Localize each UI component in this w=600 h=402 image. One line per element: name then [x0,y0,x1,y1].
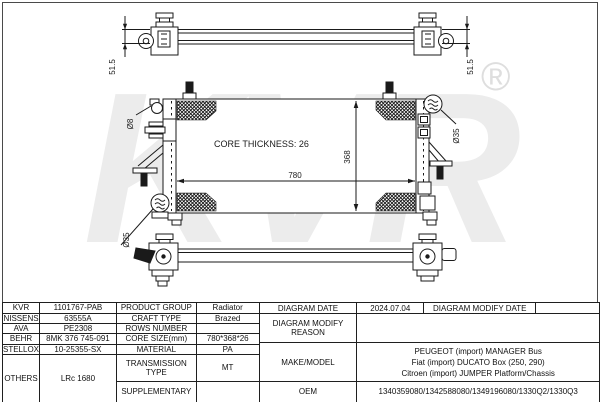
make-model-line: PEUGEOT (import) MANAGER Bus [357,346,599,357]
brand-cell: NISSENS [3,314,40,324]
spec-value-cell: Brazed [196,314,259,324]
dim-width-label: 780 [288,171,302,180]
brand-cell: KVR [3,303,40,314]
diagram-modify-reason-label-cell: DIAGRAM MODIFY REASON [259,314,357,343]
diagram-modify-date-label-cell: DIAGRAM MODIFY DATE [424,303,536,314]
spec-label-cell: ROWS NUMBER [116,324,196,334]
spec-label-cell: SUPPLEMENTARY [116,381,196,402]
part-number-cell: LRc 1680 [40,354,117,402]
make-model-line: Citroen (import) JUMPER Platform/Chassis [357,368,599,379]
spec-table-left: KVR 1101767-PAB PRODUCT GROUP Radiator N… [2,302,260,402]
make-model-line: Fiat (import) DUCATO Box (250, 290) [357,357,599,368]
spec-label-cell: CORE SIZE(mm) [116,334,196,344]
diagram-modify-reason-value-cell [357,314,600,343]
brand-cell: OTHERS [3,354,40,402]
spec-label-cell: CRAFT TYPE [116,314,196,324]
spec-value-cell: PA [196,344,259,354]
dia35-right-label: Ø35 [452,128,461,144]
dia8-label: Ø8 [126,118,135,129]
spec-label-cell: PRODUCT GROUP [116,303,196,314]
core-thickness-label: CORE THICKNESS: 26 [214,139,309,149]
spec-value-cell: MT [196,354,259,381]
drain-cap [151,194,169,212]
diagram-date-value-cell: 2024.07.04 [357,303,424,314]
brand-cell: AVA [3,324,40,334]
spec-value-cell: Radiator [196,303,259,314]
radiator-diagram: KVR ® [0,0,600,302]
part-number-cell: 8MK 376 745-091 [40,334,117,344]
spec-table-right: DIAGRAM DATE 2024.07.04 DIAGRAM MODIFY D… [259,302,600,402]
oem-label-cell: OEM [259,382,357,402]
part-number-cell: 1101767-PAB [40,303,117,314]
diagram-date-label-cell: DIAGRAM DATE [259,303,357,314]
make-model-value-cell: PEUGEOT (import) MANAGER Bus Fiat (impor… [357,343,600,382]
dia35-bottom-label: Ø35 [122,232,131,248]
spec-value-cell [196,381,259,402]
spec-label-cell: TRANSMISSION TYPE [116,354,196,381]
spec-label-cell: MATERIAL [116,344,196,354]
part-number-cell: 10-25355-SX [40,344,117,354]
registered-mark-icon: ® [481,55,510,99]
spec-value-cell [196,324,259,334]
part-number-cell: PE2308 [40,324,117,334]
dim-depth-right-label: 51.5 [466,59,475,75]
diagram-modify-date-value-cell [536,303,600,314]
spec-value-cell: 780*368*26 [196,334,259,344]
brand-cell: STELLOX [3,344,40,354]
make-model-label-cell: MAKE/MODEL [259,343,357,382]
inlet-pipe-small [152,103,163,114]
dim-height-label: 368 [343,150,352,164]
part-number-cell: 63555A [40,314,117,324]
dim-depth-left-label: 51.5 [108,59,117,75]
oem-value-cell: 1340359080/1342588080/1349196080/1330Q2/… [357,382,600,402]
spec-table: KVR 1101767-PAB PRODUCT GROUP Radiator N… [2,302,600,402]
brand-cell: BEHR [3,334,40,344]
outlet-cap [424,95,442,113]
radiator-spec-sheet: KVR ® [0,0,600,402]
